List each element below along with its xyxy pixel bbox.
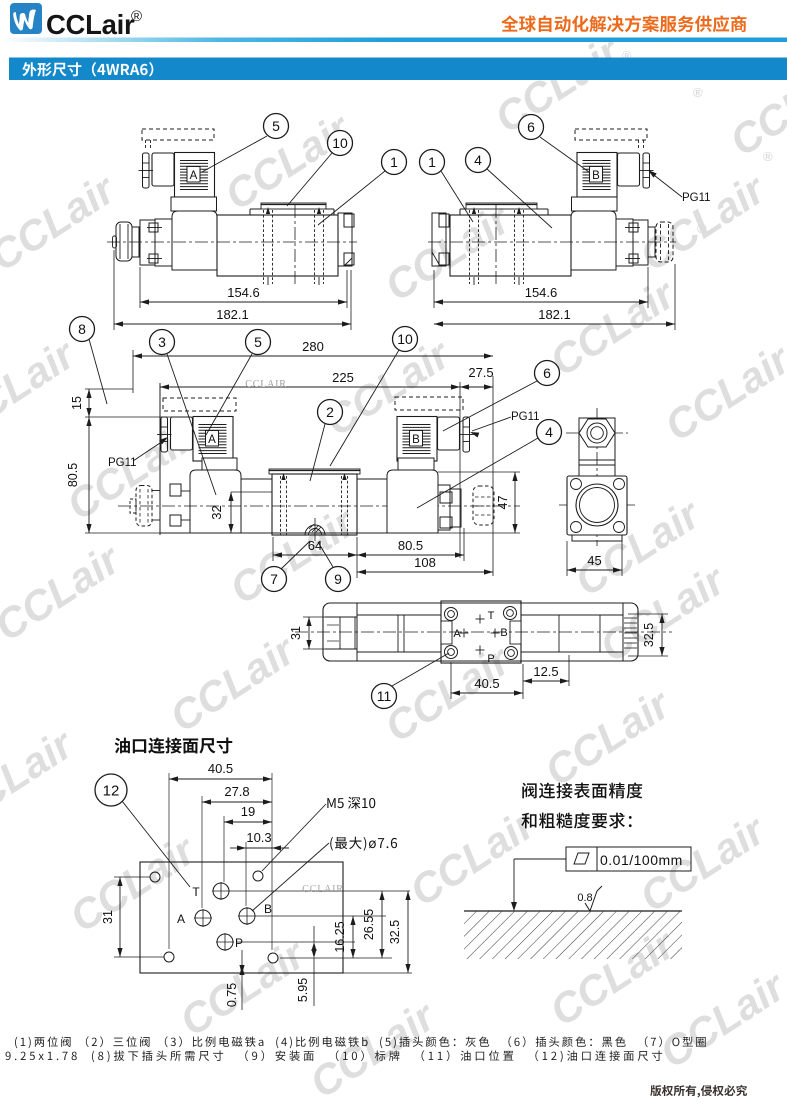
svg-text:6: 6: [527, 119, 535, 135]
svg-text:®: ®: [697, 221, 707, 236]
svg-text:10: 10: [397, 331, 413, 347]
svg-text:27.5: 27.5: [468, 365, 493, 380]
svg-text:40.5: 40.5: [208, 761, 233, 776]
svg-text:27.8: 27.8: [224, 784, 249, 799]
svg-text:P: P: [235, 936, 243, 950]
svg-text:182.1: 182.1: [538, 307, 571, 322]
svg-text:16.25: 16.25: [333, 921, 347, 952]
svg-text:0.01/100mm: 0.01/100mm: [600, 852, 683, 868]
svg-text:1: 1: [428, 154, 436, 170]
svg-text:PG11: PG11: [511, 411, 540, 423]
svg-text:9: 9: [334, 571, 342, 587]
svg-text:P: P: [487, 653, 494, 665]
svg-text:T: T: [192, 885, 200, 899]
svg-text:11: 11: [377, 688, 392, 704]
svg-text:12.5: 12.5: [533, 664, 558, 679]
svg-text:PG11: PG11: [108, 457, 137, 469]
svg-text:A: A: [453, 628, 461, 640]
svg-text:31: 31: [101, 910, 115, 924]
svg-text:®: ®: [131, 8, 142, 25]
svg-text:CCLAIR: CCLAIR: [245, 379, 286, 390]
svg-text:8: 8: [78, 321, 86, 337]
svg-text:47: 47: [496, 496, 510, 510]
svg-text:10.3: 10.3: [246, 830, 271, 845]
svg-text:B: B: [412, 434, 420, 446]
svg-text:B: B: [500, 627, 507, 639]
svg-text:12: 12: [103, 782, 120, 799]
svg-text:4: 4: [545, 424, 553, 440]
svg-text:®: ®: [693, 85, 703, 100]
svg-text:4: 4: [474, 152, 482, 168]
svg-text:7: 7: [270, 571, 278, 587]
svg-text:19: 19: [241, 804, 255, 819]
svg-text:2: 2: [326, 404, 334, 420]
svg-text:45: 45: [587, 553, 601, 568]
svg-text:154.6: 154.6: [525, 285, 558, 300]
svg-text:®: ®: [763, 149, 773, 164]
svg-text:182.1: 182.1: [216, 307, 249, 322]
svg-text:CCLAIR: CCLAIR: [302, 884, 343, 895]
svg-text:225: 225: [332, 370, 354, 385]
svg-text:3: 3: [158, 334, 166, 350]
svg-text:A: A: [190, 170, 198, 182]
svg-text:B: B: [264, 902, 272, 916]
svg-text:15: 15: [70, 396, 84, 410]
svg-text:T: T: [488, 610, 495, 622]
svg-text:A: A: [177, 912, 185, 926]
svg-text:10: 10: [332, 135, 348, 151]
svg-text:B: B: [592, 170, 600, 182]
svg-text:0.75: 0.75: [225, 983, 239, 1007]
svg-text:26.55: 26.55: [362, 909, 376, 940]
svg-text:5: 5: [254, 334, 262, 350]
svg-text:32: 32: [209, 505, 224, 519]
svg-text:40.5: 40.5: [474, 676, 499, 691]
svg-text:32.5: 32.5: [642, 623, 656, 647]
svg-text:154.6: 154.6: [227, 285, 260, 300]
svg-text:31: 31: [289, 626, 303, 640]
svg-text:5: 5: [272, 118, 280, 134]
svg-text:0.8: 0.8: [577, 892, 592, 904]
svg-text:32.5: 32.5: [388, 920, 402, 944]
svg-text:80.5: 80.5: [398, 538, 423, 553]
svg-text:PG11: PG11: [682, 192, 711, 204]
svg-text:5.95: 5.95: [296, 978, 310, 1002]
svg-text:CCLair: CCLair: [46, 9, 135, 40]
svg-text:1: 1: [390, 154, 398, 170]
svg-text:108: 108: [414, 555, 436, 570]
svg-text:80.5: 80.5: [66, 463, 80, 487]
svg-text:280: 280: [302, 339, 324, 354]
svg-text:6: 6: [543, 365, 551, 381]
svg-text:A: A: [208, 434, 216, 446]
